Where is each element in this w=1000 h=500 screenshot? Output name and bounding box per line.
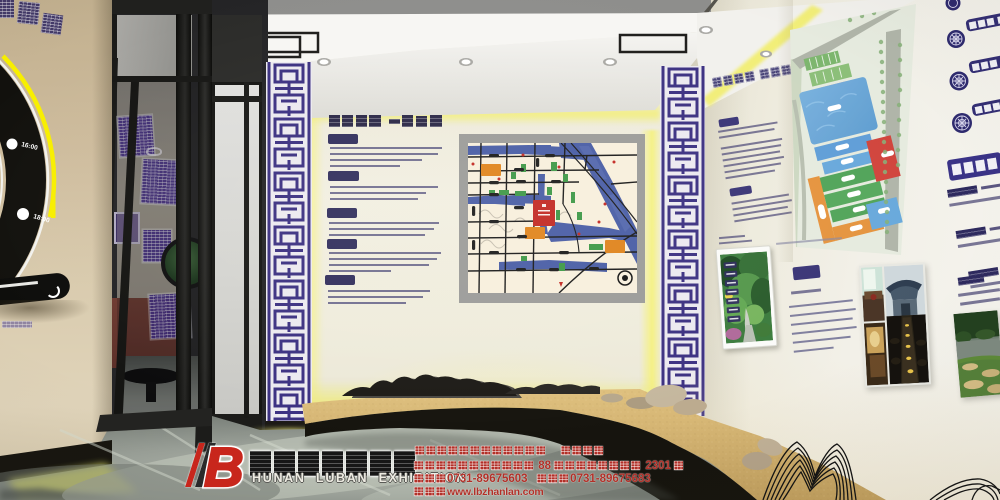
svg-text:B: B	[204, 440, 244, 492]
